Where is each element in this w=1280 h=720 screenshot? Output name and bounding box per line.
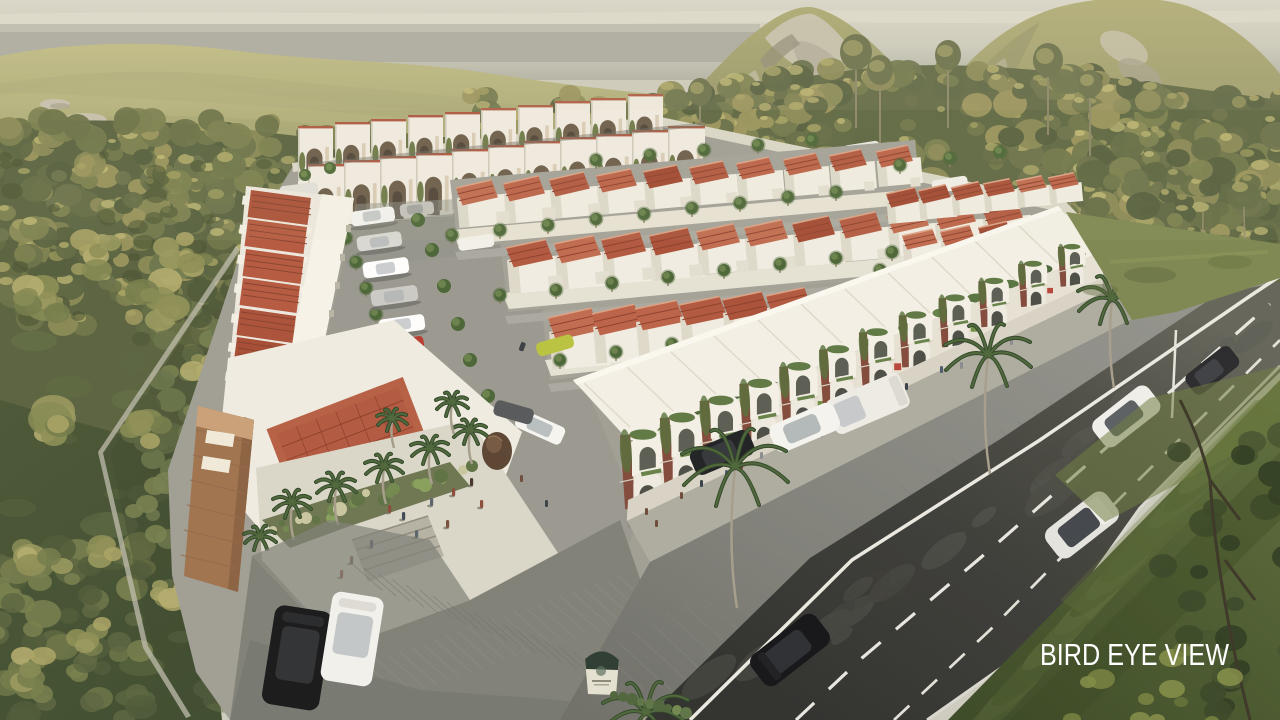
svg-text:BIRD EYE VIEW: BIRD EYE VIEW — [1040, 637, 1230, 672]
